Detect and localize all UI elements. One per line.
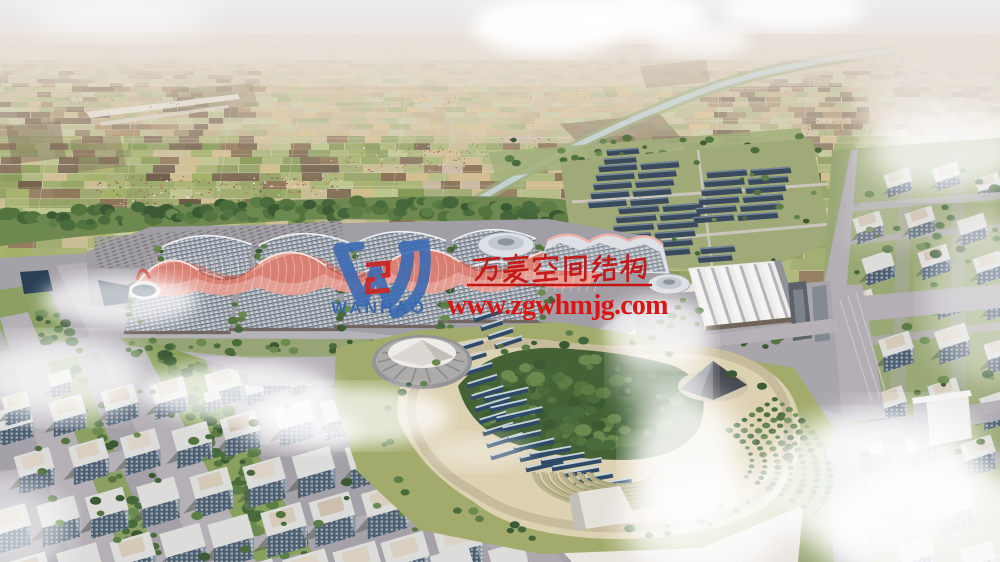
svg-text:www.zgwhmjg.com: www.zgwhmjg.com xyxy=(447,290,669,321)
